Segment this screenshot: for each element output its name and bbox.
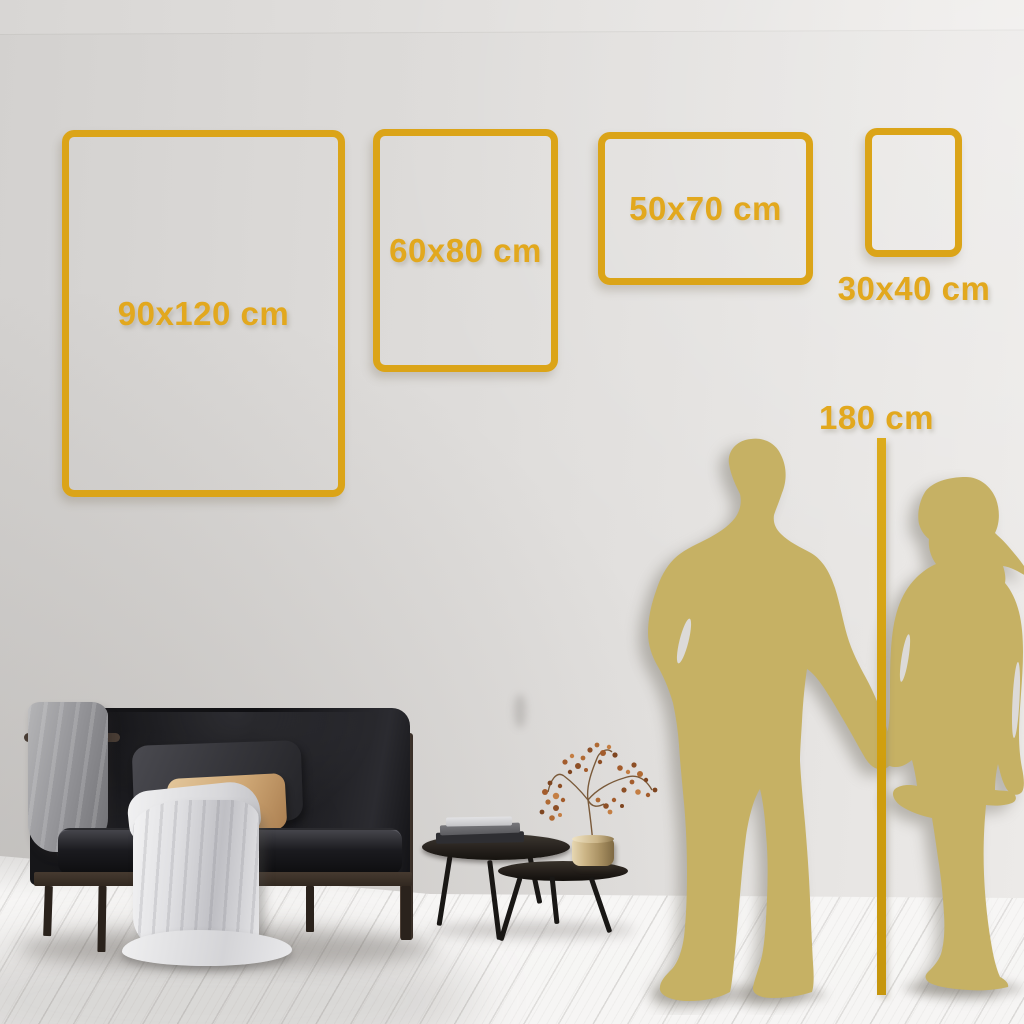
sofa-leg (401, 886, 411, 940)
book (446, 816, 512, 826)
couple-silhouette (600, 425, 1024, 1015)
size-guide-scene: 90x120 cm 60x80 cm 50x70 cm 30x40 cm 180… (0, 0, 1024, 1024)
woman-silhouette (883, 477, 1024, 990)
frame-90x120-label: 90x120 cm (118, 295, 289, 333)
frame-50x70-label: 50x70 cm (629, 190, 782, 228)
man-silhouette (648, 439, 893, 1001)
sofa-leg (306, 886, 314, 932)
wall-smudge (514, 694, 526, 728)
frame-60x80-label: 60x80 cm (389, 232, 542, 270)
frame-60x80: 60x80 cm (373, 129, 558, 372)
height-marker-line (877, 438, 886, 995)
frame-30x40 (865, 128, 962, 257)
white-throw-pool (122, 930, 292, 966)
ceiling-line (0, 0, 1024, 35)
height-marker-label: 180 cm (794, 399, 959, 437)
sofa-leg (97, 886, 106, 952)
frame-30x40-label: 30x40 cm (830, 270, 998, 308)
frame-50x70: 50x70 cm (598, 132, 813, 285)
frame-90x120: 90x120 cm (62, 130, 345, 497)
